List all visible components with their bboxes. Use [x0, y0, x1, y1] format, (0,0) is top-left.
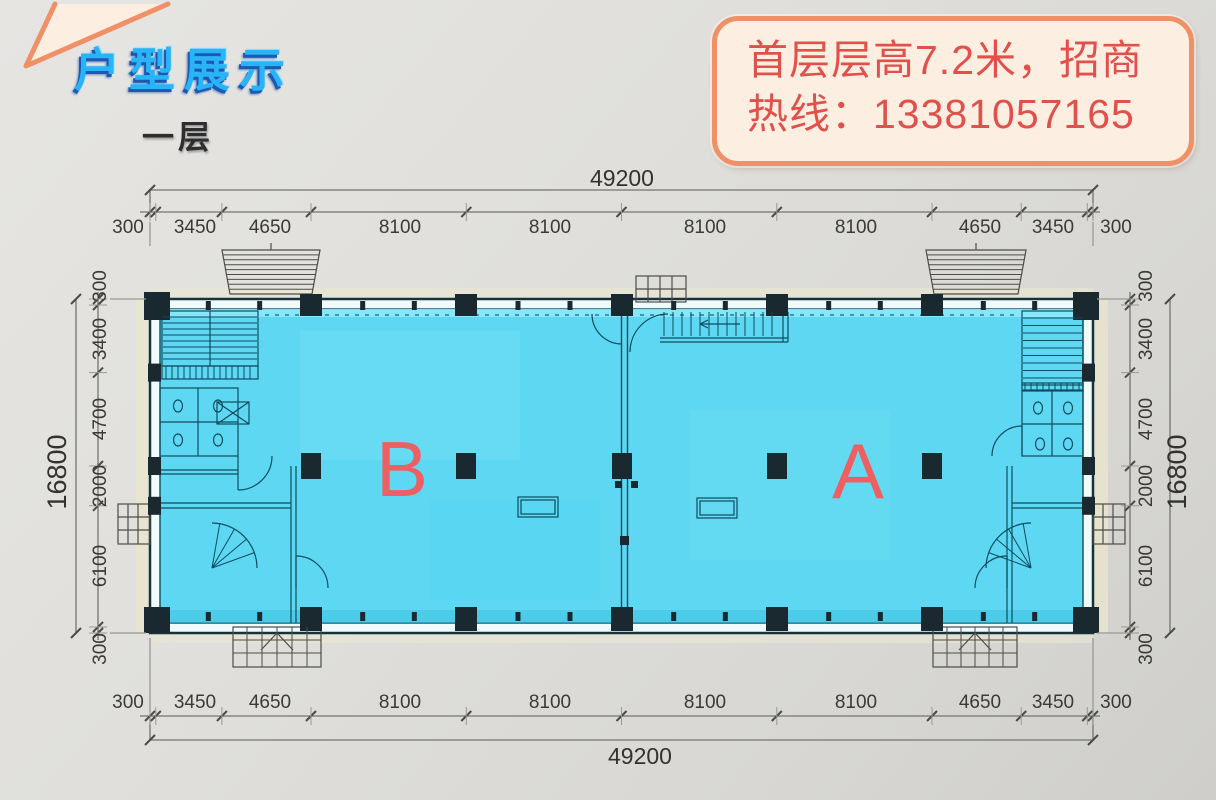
dim-label: 4700 [90, 398, 111, 440]
dim-label: 300 [1136, 270, 1157, 302]
dim-label: 300 [1100, 692, 1132, 713]
callout-tail [0, 0, 220, 80]
screenshot-root: 49200 300 3450 4650 8100 8100 8100 8100 … [0, 0, 1216, 800]
dim-label: 4650 [249, 217, 291, 238]
dim-total-bottom: 49200 [608, 743, 672, 769]
dim-label: 6100 [90, 545, 111, 587]
dim-label: 2000 [90, 465, 111, 507]
dim-label: 3450 [1032, 692, 1074, 713]
dim-label: 4650 [249, 692, 291, 713]
callout-line2: 热线：13381057165 [747, 87, 1171, 141]
dim-label: 8100 [684, 217, 726, 238]
dim-label: 4650 [959, 217, 1001, 238]
dim-label: 8100 [379, 692, 421, 713]
dim-label: 300 [112, 217, 144, 238]
dim-label: 3450 [174, 692, 216, 713]
dim-label: 4650 [959, 692, 1001, 713]
dim-label: 8100 [529, 692, 571, 713]
dim-label: 8100 [835, 217, 877, 238]
callout-line1: 首层层高7.2米，招商 [747, 33, 1171, 87]
dim-total-left: 16800 [42, 434, 72, 509]
dim-label: 300 [1136, 633, 1157, 665]
unit-a-label: A [832, 432, 884, 510]
dim-label: 3450 [1032, 217, 1074, 238]
unit-b-label: B [376, 430, 428, 508]
dim-total-top: 49200 [590, 165, 654, 191]
dim-total-right: 16800 [1162, 434, 1192, 509]
floor-label: 一层 [142, 112, 214, 158]
dim-label: 2000 [1136, 465, 1157, 507]
dim-label: 8100 [684, 692, 726, 713]
callout-bubble: 首层层高7.2米，招商 热线：13381057165 [712, 16, 1194, 166]
dim-label: 300 [90, 270, 111, 302]
dim-label: 300 [90, 633, 111, 665]
dim-label: 8100 [529, 217, 571, 238]
dim-label: 3400 [90, 318, 111, 360]
dim-label: 4700 [1136, 398, 1157, 440]
dim-label: 6100 [1136, 545, 1157, 587]
dim-label: 300 [112, 692, 144, 713]
dim-label: 3450 [174, 217, 216, 238]
dim-label: 8100 [835, 692, 877, 713]
dim-label: 8100 [379, 217, 421, 238]
dim-label: 300 [1100, 217, 1132, 238]
dim-label: 3400 [1136, 318, 1157, 360]
